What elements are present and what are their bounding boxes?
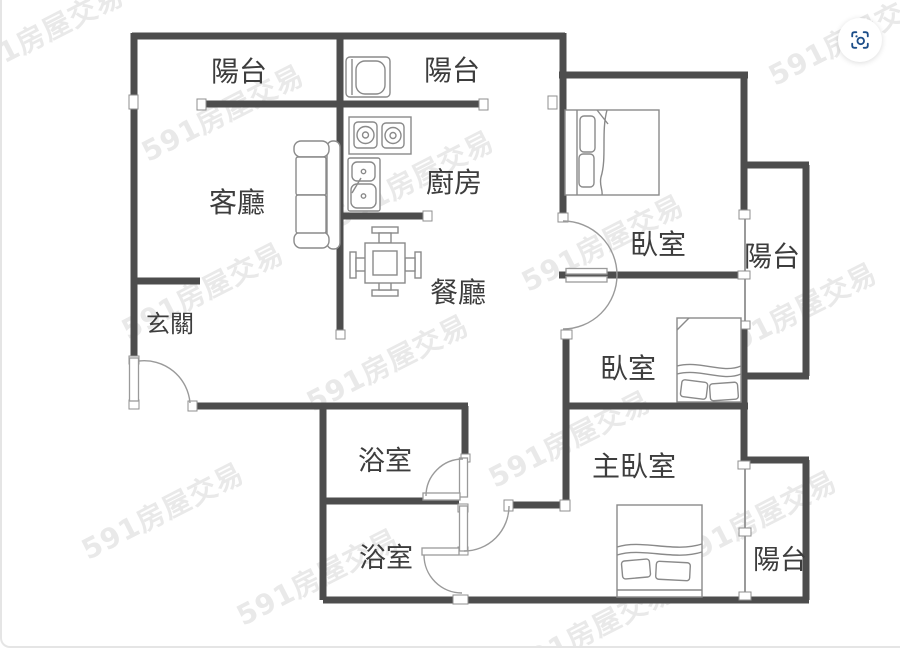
window-marker [548,96,557,109]
room-label-balcony-top-left: 陽台 [211,55,267,88]
stove [349,117,411,154]
room-label-bathroom-2: 浴室 [359,543,413,574]
bed-master-bedroom [617,505,702,597]
kitchen-sink [348,158,380,211]
room-label-entryway: 玄關 [146,310,194,338]
bed-bedroom-1 [565,110,659,195]
room-label-bedroom-2: 臥室 [600,352,656,385]
room-label-bedroom-1: 臥室 [630,228,686,261]
room-label-dining-room: 餐廳 [430,276,486,309]
watermark-text: 591房屋交易 [231,523,404,633]
room-label-balcony-bottom-right: 陽台 [753,545,807,576]
floorplan-card: 591房屋交易591房屋交易591房屋交易591房屋交易591房屋交易591房屋… [0,0,900,648]
floor-plan-drawing: 591房屋交易591房屋交易591房屋交易591房屋交易591房屋交易591房屋… [2,0,900,648]
furniture [294,57,741,597]
watermark-text: 591房屋交易 [76,457,249,567]
room-label-master-bedroom: 主臥室 [592,450,676,483]
camera-scan-icon [849,29,871,51]
dining-table [350,227,421,296]
room-label-balcony-top-middle: 陽台 [424,54,480,87]
room-label-balcony-right: 陽台 [744,240,800,273]
watermark-text: 591房屋交易 [301,309,474,419]
window-marker [129,95,138,109]
watermark-text: 591房屋交易 [116,237,289,347]
bathroom-1-door [423,458,468,500]
bedroom-2-door [563,275,617,329]
entry-door [130,358,191,403]
washing-machine [346,57,390,97]
sofa [294,141,340,249]
bathroom-2-door [422,548,462,593]
bed-bedroom-2 [677,318,741,402]
room-label-kitchen: 廚房 [426,166,482,199]
master-bedroom-door [460,506,510,551]
scan-photo-button[interactable] [838,18,882,62]
watermark-text: 591房屋交易 [2,0,129,89]
room-label-bathroom-1: 浴室 [358,446,412,477]
room-label-living-room: 客廳 [209,186,265,219]
